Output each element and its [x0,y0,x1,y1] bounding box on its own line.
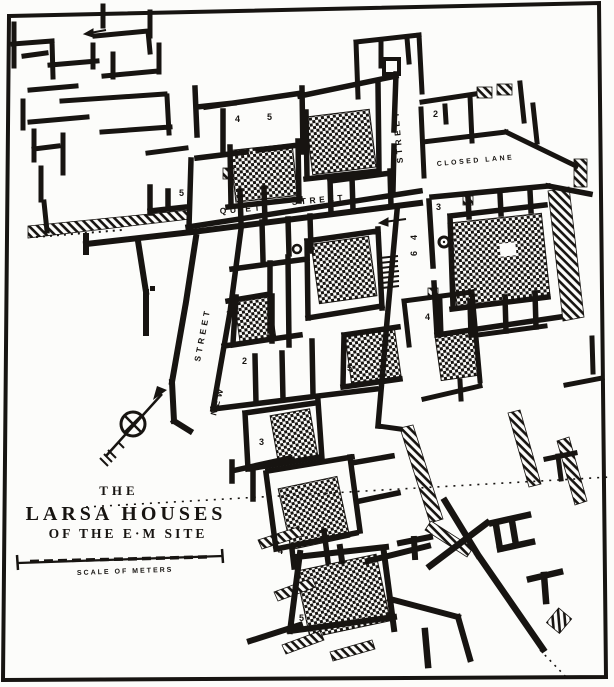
house-number: 3 [436,202,441,212]
house-number: 4 [235,114,240,124]
house-number: 4 [409,235,419,240]
title-line-2: LARSA HOUSES [26,503,227,525]
house-number: 2 [433,109,438,119]
title-line-3: OF THE E·M SITE [49,526,208,541]
house-number: 3 [259,437,264,447]
house-number: 5 [179,188,184,198]
house-number: 1 [226,309,231,319]
house-number: 6 [409,251,419,256]
title-line-1: THE [99,483,138,498]
house-number: 2 [242,356,247,366]
house-number: 5 [267,112,272,122]
house-number: 4 [425,312,430,322]
larsa-map-svg: SCALE OF METERS THE LARSA HOUSES OF THE … [0,0,614,687]
house-number: 5 [347,363,352,373]
wall-dot-mark [150,286,155,291]
site-plan-figure: SCALE OF METERS THE LARSA HOUSES OF THE … [0,0,614,687]
house-number: 4 [278,546,283,556]
house-number: 3 [229,185,234,195]
house-number: 5 [299,613,304,623]
